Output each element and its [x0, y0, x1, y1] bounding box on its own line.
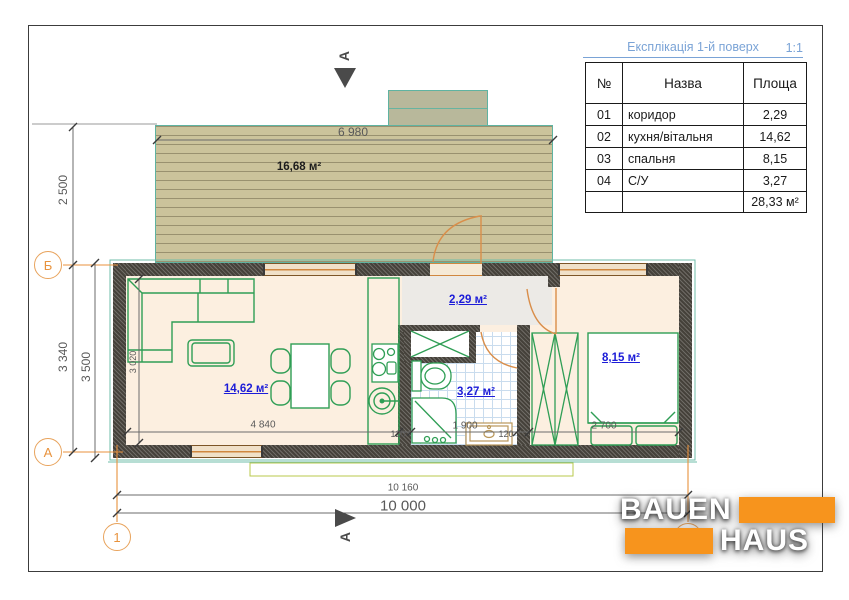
- dim-building-depth: 3 500: [79, 352, 93, 382]
- kitchen-living-area-label: 14,62 м²: [224, 383, 268, 395]
- logo-row-2: HAUS: [620, 527, 849, 555]
- row-area: 8,15: [744, 148, 807, 170]
- toilet-icon: [412, 361, 451, 391]
- grid-axis-a-label: А: [44, 445, 53, 460]
- grid-axis-b-circle: Б: [34, 251, 62, 279]
- table-row: 01 коридор 2,29: [586, 104, 807, 126]
- dim-wall-left: 120: [390, 429, 405, 439]
- bedroom-door-swing: [527, 288, 556, 334]
- row-area: 14,62: [744, 126, 807, 148]
- table-header-row: № Назва Площа: [586, 63, 807, 104]
- logo-bar-top: [739, 497, 835, 523]
- vent-niche-cross-icon: [411, 331, 469, 357]
- dim-deck-depth: 2 500: [56, 175, 70, 205]
- logo-bar-bottom: [625, 528, 713, 554]
- bathroom-area-label: 3,27 м²: [457, 386, 495, 398]
- row-num: 01: [586, 104, 623, 126]
- dining-set: [271, 344, 350, 408]
- col-header-name: Назва: [623, 63, 744, 104]
- dim-overall-with-walls: 10 160: [388, 483, 419, 494]
- dim-living-width: 4 840: [250, 420, 275, 431]
- table-row: 04 С/У 3,27: [586, 170, 807, 192]
- landscape-strip: [250, 463, 573, 476]
- stove-icon: [372, 344, 398, 382]
- section-label-top: А: [336, 51, 352, 61]
- section-label-bottom: А: [337, 532, 353, 542]
- kitchen-sink-icon: [369, 388, 399, 414]
- dim-axis-span: 3 340: [56, 342, 70, 372]
- total-name-cell: [623, 192, 744, 213]
- coffee-table: [188, 340, 234, 366]
- logo-text-bauen: BAUEN: [620, 496, 732, 524]
- table-row: 02 кухня/вітальня 14,62: [586, 126, 807, 148]
- bauen-haus-logo: BAUEN HAUS: [620, 496, 849, 570]
- row-name: спальня: [623, 148, 744, 170]
- table-total-row: 28,33 м²: [586, 192, 807, 213]
- entry-door-swing: [433, 215, 481, 263]
- bathroom-door-swing: [481, 332, 517, 368]
- row-num: 03: [586, 148, 623, 170]
- dim-overall: 10 000: [380, 498, 426, 515]
- table-row: 03 спальня 8,15: [586, 148, 807, 170]
- row-num: 04: [586, 170, 623, 192]
- dim-bedroom-width: 2 700: [591, 421, 616, 432]
- col-header-num: №: [586, 63, 623, 104]
- row-area: 3,27: [744, 170, 807, 192]
- dim-wall-right: 120: [498, 429, 513, 439]
- legend-title-bar: Експлікація 1-й поверх 1:1: [583, 40, 803, 58]
- grid-axis-b-label: Б: [44, 258, 53, 273]
- logo-text-haus: HAUS: [720, 527, 809, 555]
- floor-plan-drawing: { "legend": { "title": "Експлікація 1-й …: [0, 0, 849, 600]
- row-name: кухня/вітальня: [623, 126, 744, 148]
- logo-row-1: BAUEN: [620, 496, 849, 524]
- grid-axis-1-label: 1: [113, 530, 120, 545]
- grid-axis-a-circle: А: [34, 438, 62, 466]
- bedroom-area-label: 8,15 м²: [602, 352, 640, 364]
- total-area-cell: 28,33 м²: [744, 192, 807, 213]
- row-num: 02: [586, 126, 623, 148]
- total-num-cell: [586, 192, 623, 213]
- room-schedule-table: № Назва Площа 01 коридор 2,29 02 кухня/в…: [585, 62, 807, 213]
- dim-deck-width: 6 980: [338, 125, 368, 139]
- shower-icon: [412, 398, 456, 443]
- dim-living-depth: 3 020: [128, 351, 138, 374]
- grid-axis-1-circle: 1: [103, 523, 131, 551]
- deck-area-label: 16,68 м²: [277, 161, 321, 173]
- dim-bath-width: 1 900: [452, 421, 477, 432]
- row-name: С/У: [623, 170, 744, 192]
- row-area: 2,29: [744, 104, 807, 126]
- col-header-area: Площа: [744, 63, 807, 104]
- row-name: коридор: [623, 104, 744, 126]
- wardrobe: [532, 333, 578, 445]
- legend-scale: 1:1: [786, 41, 803, 55]
- corner-sofa: [128, 279, 254, 362]
- legend-title: Експлікація 1-й поверх: [627, 40, 759, 54]
- corridor-area-label: 2,29 м²: [449, 294, 487, 306]
